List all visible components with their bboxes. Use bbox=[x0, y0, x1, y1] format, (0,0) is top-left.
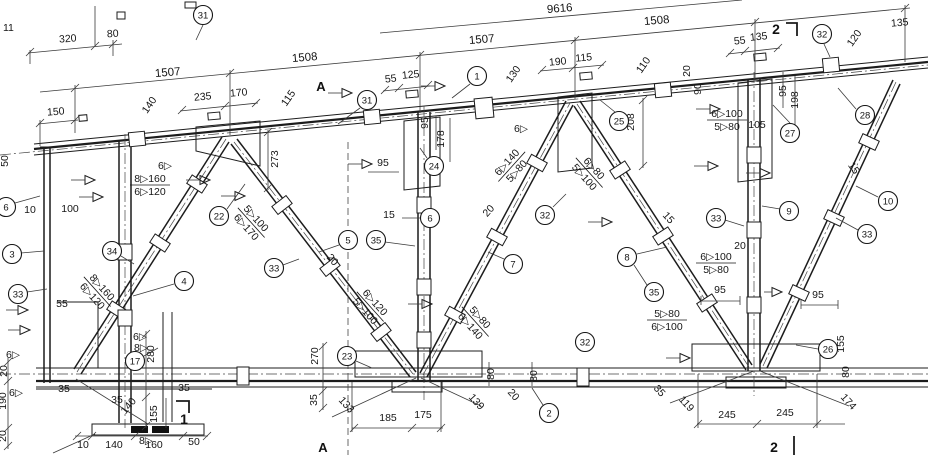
callout-33a: 33 bbox=[707, 209, 726, 228]
dim-label: 95 bbox=[812, 289, 824, 301]
dim-label: 190 bbox=[548, 55, 567, 68]
dim-label: 95 bbox=[419, 117, 431, 129]
dim-label: 50 bbox=[188, 436, 200, 448]
dim-label: 20 bbox=[0, 430, 9, 442]
dim-label: 135 bbox=[749, 30, 768, 44]
svg-text:31: 31 bbox=[362, 96, 373, 107]
weld-note-small: 6▷ bbox=[158, 160, 173, 172]
weld-flag-icon bbox=[666, 354, 690, 363]
callout-25: 25 bbox=[610, 112, 629, 131]
dim-label: 120 bbox=[845, 28, 865, 49]
weld-flag-icon bbox=[588, 218, 612, 227]
section-label-a-top: A bbox=[316, 79, 326, 94]
callout-31b: 31 bbox=[358, 91, 377, 110]
dim-label: 55 bbox=[56, 298, 68, 310]
callout-31: 31 bbox=[194, 6, 213, 25]
dim-label: 55 bbox=[384, 72, 397, 85]
callout-33d: 33 bbox=[265, 259, 284, 278]
svg-text:31: 31 bbox=[198, 11, 209, 22]
callout-27: 27 bbox=[781, 124, 800, 143]
callout-17: 17 bbox=[126, 352, 145, 371]
diagonal-5 bbox=[760, 80, 900, 368]
dim-label: 185 bbox=[379, 412, 397, 424]
svg-text:5▷80: 5▷80 bbox=[714, 121, 740, 133]
dim-label: 1508 bbox=[643, 14, 670, 28]
svg-text:17: 17 bbox=[130, 357, 141, 368]
svg-text:5: 5 bbox=[345, 236, 350, 247]
callout-35b: 35 bbox=[645, 283, 664, 302]
dim-label: 139 bbox=[466, 391, 487, 412]
dim-label: 20 bbox=[505, 387, 522, 404]
callout-35a: 35 bbox=[367, 231, 386, 250]
weld-note-small: 6▷ bbox=[9, 387, 24, 399]
dim-label: 80 bbox=[107, 28, 120, 41]
callout-23: 23 bbox=[338, 347, 357, 366]
weld-note: 5▷806▷140 bbox=[452, 299, 497, 345]
svg-text:5▷80: 5▷80 bbox=[703, 264, 729, 276]
dim-label: 35 bbox=[308, 394, 320, 406]
dim-label: 119 bbox=[676, 394, 696, 415]
weld-note-small: 6▷ bbox=[514, 123, 529, 135]
weld-note: 6▷1005▷80 bbox=[707, 108, 747, 133]
dim-label: 270 bbox=[309, 347, 321, 365]
weld-flag-icon bbox=[8, 326, 30, 335]
callout-10: 10 bbox=[879, 192, 898, 211]
dim-label: 235 bbox=[193, 90, 212, 103]
dim-label: 1507 bbox=[468, 33, 495, 47]
callout-6b: 6 bbox=[0, 198, 16, 217]
callout-22: 22 bbox=[210, 207, 229, 226]
dim-label: 198 bbox=[789, 91, 801, 109]
svg-text:35: 35 bbox=[649, 288, 660, 299]
dim-label: 115 bbox=[279, 88, 299, 109]
weld-flag-icon bbox=[328, 89, 352, 98]
dim-label: 170 bbox=[229, 86, 248, 99]
weld-flag-icon bbox=[71, 176, 95, 185]
section-bracket-2-top bbox=[786, 23, 797, 36]
dim-label: 1507 bbox=[154, 66, 181, 80]
dim-label: 105 bbox=[748, 119, 766, 131]
dim-label: 10 bbox=[24, 204, 36, 216]
svg-text:6▷100: 6▷100 bbox=[711, 108, 743, 120]
vertical-post-2 bbox=[418, 106, 430, 400]
dim-label: 178 bbox=[435, 130, 447, 148]
callout-8: 8 bbox=[618, 248, 637, 267]
dim-label: 174 bbox=[838, 391, 859, 412]
dim-label: 15 bbox=[845, 160, 862, 177]
callout-26: 26 bbox=[819, 340, 838, 359]
dim-label: 110 bbox=[634, 55, 654, 76]
dim-label: 175 bbox=[414, 409, 432, 421]
weld-flag-icon bbox=[694, 162, 718, 171]
weld-flag-icon bbox=[408, 300, 432, 309]
dim-label: 80 bbox=[485, 368, 497, 380]
dim-label: 15 bbox=[660, 210, 677, 227]
dim-label: 155 bbox=[148, 405, 160, 423]
svg-text:6▷120: 6▷120 bbox=[134, 186, 166, 198]
dim-label: 95 bbox=[777, 85, 789, 97]
svg-text:1: 1 bbox=[474, 72, 479, 83]
dim-label: 320 bbox=[59, 32, 77, 45]
weld-flag-icon bbox=[79, 193, 103, 202]
svg-text:32: 32 bbox=[580, 338, 591, 349]
weld-flag-icon bbox=[6, 306, 28, 315]
weld-flag-icon bbox=[348, 160, 372, 169]
dim-label: 20 bbox=[734, 240, 746, 252]
svg-text:2: 2 bbox=[546, 409, 551, 420]
section-label-a-bottom: A bbox=[318, 440, 328, 455]
svg-text:24: 24 bbox=[429, 162, 440, 173]
svg-text:35: 35 bbox=[371, 236, 382, 247]
dim-label: 80 bbox=[840, 366, 852, 378]
svg-text:26: 26 bbox=[823, 345, 834, 356]
callout-33c: 33 bbox=[9, 285, 28, 304]
dim-label: 130 bbox=[504, 64, 524, 85]
callout-2: 2 bbox=[540, 404, 559, 423]
weld-flag-icon bbox=[421, 82, 445, 91]
dim-label: 150 bbox=[47, 105, 65, 118]
callout-24: 24 bbox=[425, 157, 444, 176]
weld-note: 6▷805▷100 bbox=[566, 150, 611, 196]
weld-note: 6▷1405▷80 bbox=[489, 144, 534, 190]
svg-text:8▷160: 8▷160 bbox=[134, 173, 166, 185]
dim-label: 35 bbox=[58, 383, 70, 395]
dimension-labels: 11 320 80 1507 1508 1507 1508 9616 150 1… bbox=[0, 2, 909, 451]
svg-text:9: 9 bbox=[786, 207, 791, 218]
dim-label: 273 bbox=[269, 150, 281, 168]
dim-label: 10 bbox=[77, 439, 89, 451]
svg-text:33: 33 bbox=[269, 264, 280, 275]
svg-text:6: 6 bbox=[427, 214, 432, 225]
section-label-2-top: 2 bbox=[772, 21, 780, 37]
svg-text:23: 23 bbox=[342, 352, 353, 363]
weld-flag-icon bbox=[746, 169, 770, 178]
weld-flag-icon bbox=[764, 288, 782, 297]
dim-label: 140 bbox=[140, 95, 160, 116]
dim-label: 95 bbox=[714, 284, 726, 296]
callout-9: 9 bbox=[780, 202, 799, 221]
dim-label: 115 bbox=[575, 51, 593, 64]
callout-7: 7 bbox=[504, 255, 523, 274]
truss-drawing-canvas: 11 320 80 1507 1508 1507 1508 9616 150 1… bbox=[0, 0, 928, 455]
svg-text:6▷100: 6▷100 bbox=[700, 251, 732, 263]
callout-4: 4 bbox=[175, 272, 194, 291]
svg-text:28: 28 bbox=[860, 111, 871, 122]
callout-34: 34 bbox=[103, 242, 122, 261]
dim-label: 140 bbox=[105, 439, 123, 451]
dim-label: 15 bbox=[383, 209, 395, 221]
weld-note: 5▷1006▷170 bbox=[228, 200, 273, 246]
dim-label: 9616 bbox=[546, 2, 573, 16]
svg-text:32: 32 bbox=[540, 211, 551, 222]
svg-text:25: 25 bbox=[614, 117, 625, 128]
dim-label: 90 bbox=[692, 83, 704, 95]
svg-text:6▷100: 6▷100 bbox=[651, 321, 683, 333]
svg-text:34: 34 bbox=[107, 247, 118, 258]
dim-label: 245 bbox=[718, 409, 736, 421]
dim-label: 100 bbox=[61, 203, 79, 215]
callout-balloons: 31 31 1 25 32 28 27 10 9 33 33 6 24 22 3… bbox=[0, 6, 898, 423]
weld-note: 5▷806▷100 bbox=[647, 308, 687, 333]
dim-label: 20 bbox=[0, 365, 10, 377]
callout-3: 3 bbox=[3, 245, 22, 264]
dim-label: 245 bbox=[776, 407, 794, 419]
dimension-ticks bbox=[4, 4, 909, 450]
svg-text:6: 6 bbox=[3, 203, 8, 214]
truss-shop-drawing: 11 320 80 1507 1508 1507 1508 9616 150 1… bbox=[0, 0, 928, 455]
svg-text:5▷80: 5▷80 bbox=[654, 308, 680, 320]
weld-note-small: 8▷ bbox=[139, 435, 154, 447]
section-label-2-bottom: 2 bbox=[770, 439, 778, 455]
dim-label: 11 bbox=[3, 22, 14, 34]
weld-note: 8▷1606▷120 bbox=[130, 173, 170, 198]
weld-note-small: 6▷ bbox=[6, 349, 21, 361]
dim-label: 190 bbox=[0, 392, 9, 410]
weld-note: 6▷1005▷80 bbox=[696, 251, 736, 276]
callout-32t: 32 bbox=[813, 25, 832, 44]
svg-text:22: 22 bbox=[214, 212, 225, 223]
svg-text:10: 10 bbox=[883, 197, 894, 208]
callout-33b: 33 bbox=[858, 225, 877, 244]
callout-5: 5 bbox=[339, 231, 358, 250]
callout-32a: 32 bbox=[536, 206, 555, 225]
dim-label: 95 bbox=[377, 157, 389, 169]
svg-text:7: 7 bbox=[510, 260, 515, 271]
svg-text:8: 8 bbox=[624, 253, 629, 264]
svg-text:32: 32 bbox=[817, 30, 828, 41]
dim-label: 133 bbox=[336, 394, 357, 415]
diagonal-2 bbox=[231, 139, 416, 377]
end-post bbox=[40, 147, 55, 383]
svg-text:33: 33 bbox=[13, 290, 24, 301]
dim-label: 55 bbox=[733, 34, 746, 47]
svg-text:4: 4 bbox=[181, 277, 186, 288]
dim-label: 35 bbox=[178, 382, 190, 394]
callout-6: 6 bbox=[421, 209, 440, 228]
dim-label: 1508 bbox=[291, 51, 318, 65]
dim-label: 20 bbox=[681, 65, 693, 77]
callout-32b: 32 bbox=[576, 333, 595, 352]
weld-flag-icon bbox=[221, 192, 245, 201]
callout-28: 28 bbox=[856, 106, 875, 125]
svg-text:3: 3 bbox=[9, 250, 14, 261]
svg-text:33: 33 bbox=[711, 214, 722, 225]
dim-label: 35 bbox=[651, 383, 668, 400]
dim-label: 50 bbox=[0, 155, 11, 167]
dim-label: 80 bbox=[528, 370, 540, 382]
dim-label: 135 bbox=[890, 16, 909, 29]
svg-text:33: 33 bbox=[862, 230, 873, 241]
svg-text:27: 27 bbox=[785, 129, 796, 140]
dim-label: 125 bbox=[401, 68, 420, 82]
dim-label: 20 bbox=[480, 203, 497, 220]
section-label-1: 1 bbox=[180, 411, 188, 427]
callout-1: 1 bbox=[468, 67, 487, 86]
